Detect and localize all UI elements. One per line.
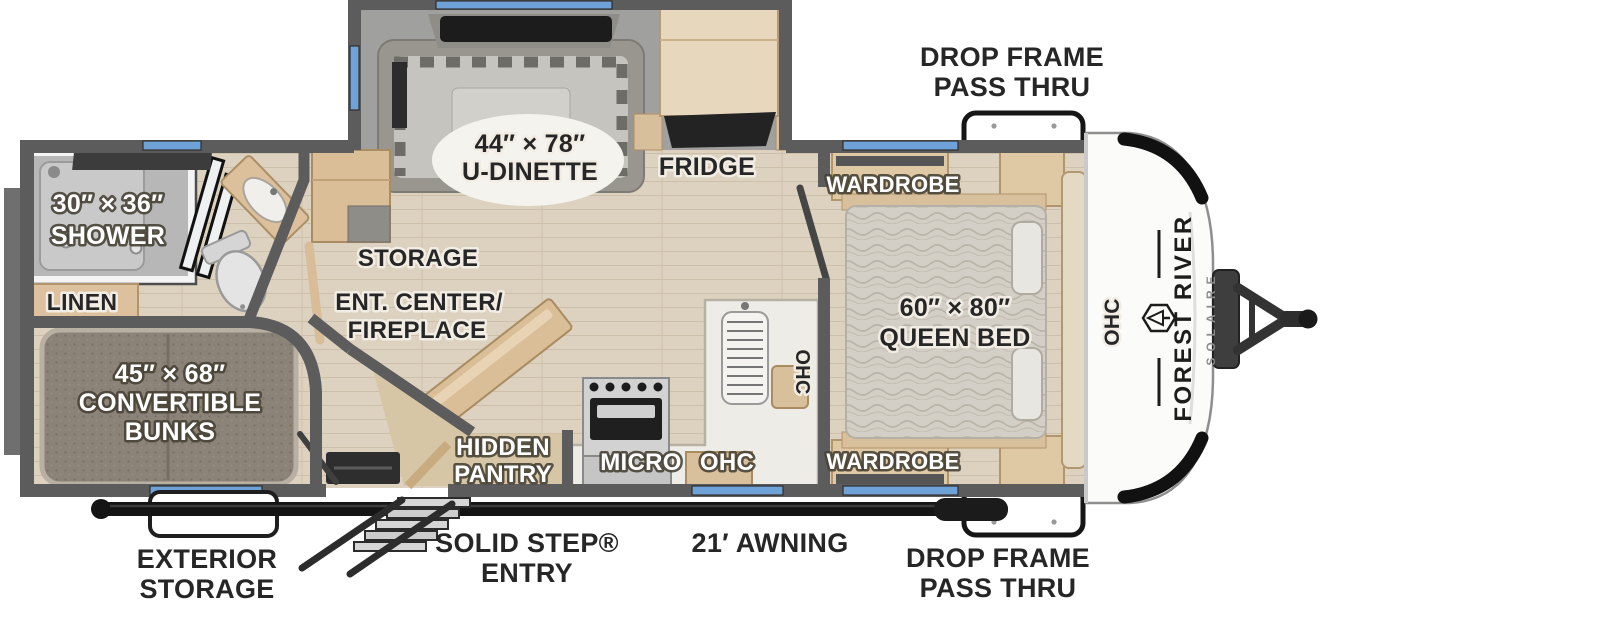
label-exterior-storage-line2: STORAGE xyxy=(139,574,274,604)
label-bunks-line1: 45″ × 68″ xyxy=(115,360,226,388)
window xyxy=(143,141,201,150)
label-queen-bed-line2: QUEEN BED xyxy=(879,324,1030,352)
label-ohc-front: OHC xyxy=(1101,298,1124,346)
label-drop-frame-bottom-line1: DROP FRAME xyxy=(906,543,1090,573)
label-wardrobe-bottom: WARDROBE xyxy=(826,449,959,474)
window xyxy=(436,1,612,9)
label-drop-frame-bottom-line2: PASS THRU xyxy=(920,573,1077,603)
hitch-coupler xyxy=(1299,310,1318,329)
label-bunks-line2: CONVERTIBLE xyxy=(79,389,261,417)
brand-model: SOLAIRE xyxy=(1204,270,1218,365)
label-ohc-bottom: OHC xyxy=(700,449,754,476)
floorplan-svg: 30″ × 36″ SHOWER LINEN STORAGE ENT. CENT… xyxy=(0,0,1600,619)
hitch xyxy=(1213,270,1318,368)
window xyxy=(843,141,958,150)
bunk-room-wall xyxy=(20,316,252,328)
label-shower-line1: 30″ × 36″ xyxy=(53,190,164,218)
faucet-icon xyxy=(741,302,749,310)
oven-window xyxy=(590,398,662,440)
floorplan-image: 30″ × 36″ SHOWER LINEN STORAGE ENT. CENT… xyxy=(0,0,1600,619)
label-u-dinette-line1: 44″ × 78″ xyxy=(475,130,586,158)
label-u-dinette-line2: U-DINETTE xyxy=(462,158,598,186)
fridge-open-door xyxy=(664,112,776,148)
front-overhead-cabinet xyxy=(1062,172,1086,468)
window xyxy=(692,486,783,495)
label-storage: STORAGE xyxy=(358,245,478,272)
label-ohc-kitchen: OHC xyxy=(791,349,813,394)
label-wardrobe-top: WARDROBE xyxy=(826,172,959,197)
pillow xyxy=(1012,348,1042,420)
label-ent-center-line1: ENT. CENTER/ xyxy=(335,289,503,316)
label-queen-bed-line1: 60″ × 80″ xyxy=(900,294,1011,322)
label-ent-center-line2: FIREPLACE xyxy=(348,317,487,344)
window xyxy=(350,46,359,110)
rear-bumper xyxy=(4,188,22,455)
pillow xyxy=(1012,222,1042,294)
label-solid-step-line2: ENTRY xyxy=(481,558,573,588)
label-drop-frame-top-line1: DROP FRAME xyxy=(920,42,1104,72)
label-hidden-pantry-line2: PANTRY xyxy=(454,461,552,488)
label-awning: 21′ AWNING xyxy=(692,528,849,558)
label-solid-step-line1: SOLID STEP® xyxy=(435,528,619,558)
label-bunks-line3: BUNKS xyxy=(125,418,215,446)
storage-cabinet xyxy=(312,150,390,242)
label-drop-frame-top-line2: PASS THRU xyxy=(934,72,1091,102)
label-micro: MICRO xyxy=(600,449,682,476)
window xyxy=(843,486,958,495)
label-exterior-storage-line1: EXTERIOR xyxy=(137,544,277,574)
dinette-side-table xyxy=(392,62,407,128)
tv xyxy=(428,14,620,48)
label-shower-line2: SHOWER xyxy=(51,222,165,250)
label-linen: LINEN xyxy=(47,289,118,315)
label-fridge: FRIDGE xyxy=(659,153,755,181)
shower-head-icon xyxy=(48,166,60,178)
label-hidden-pantry-line1: HIDDEN xyxy=(456,434,550,461)
